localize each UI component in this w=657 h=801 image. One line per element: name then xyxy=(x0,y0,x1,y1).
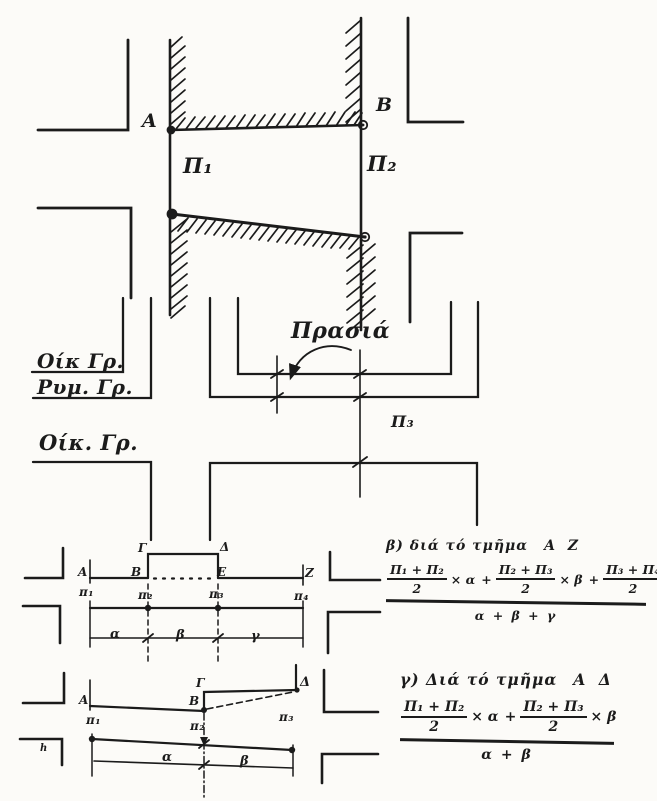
formula-segment-az: β) διά τό τμῆμαΑ Ζ Π₁ + Π₂ 2 × α + Π₂ + … xyxy=(386,538,646,623)
building-line-label-top: Οίκ Γρ. xyxy=(37,351,124,371)
az-seg-a-label: α xyxy=(110,628,121,641)
width-p3-label: Π₃ xyxy=(391,414,414,430)
ad-point-b-label: Β xyxy=(189,695,200,707)
az-point-a-label: A xyxy=(78,566,88,578)
az-pi2-dot xyxy=(145,605,151,611)
ad-top-right-corner xyxy=(324,670,378,712)
ad-pi-line xyxy=(92,739,292,750)
top-point-b-label: B xyxy=(376,96,393,115)
formula-ad-plus1: + xyxy=(505,709,517,725)
lower-left-dot xyxy=(167,209,178,220)
formula-az-fraction-bar xyxy=(386,599,646,606)
az-seg-b-label: β xyxy=(176,629,185,642)
corner-points xyxy=(167,121,370,241)
ad-b-dot xyxy=(201,707,207,713)
formula-az-denominator: α + β + γ xyxy=(386,608,646,623)
formula-az-frac2-num: Π₂ + Π₃ xyxy=(496,562,556,580)
az-pi2-label: π₂ xyxy=(138,589,153,601)
az-recess xyxy=(148,554,218,578)
az-pi3-label: π₃ xyxy=(209,588,224,600)
middle-measure-lines xyxy=(271,346,367,497)
formula-ad-mul2: × β xyxy=(591,709,617,725)
ad-pi3-label: π₃ xyxy=(279,711,294,723)
az-top-left-corner xyxy=(25,548,63,578)
ad-stray-mark: h xyxy=(40,744,48,754)
prasia-arrow xyxy=(291,346,351,377)
bottom-left-corner xyxy=(38,208,131,298)
ad-line-a-b xyxy=(90,706,204,711)
az-point-d-label: Δ xyxy=(220,541,230,553)
point-a-dot xyxy=(167,126,176,135)
formula-az-frac3-num: Π₃ + Π₄ xyxy=(603,562,657,580)
formula-ad-frac2: Π₂ + Π₃ 2 xyxy=(520,699,586,735)
formula-ad-frac1-den: 2 xyxy=(429,718,439,735)
bottom-facade-hatch-band xyxy=(178,218,359,249)
formula-ad-frac1-num: Π₁ + Π₂ xyxy=(401,699,467,718)
formula-az-plus2: + xyxy=(589,572,599,587)
ad-top-left-corner xyxy=(23,673,64,703)
formula-az-frac1-den: 2 xyxy=(413,580,422,596)
az-bottom-left-corner xyxy=(23,606,60,643)
formula-az-frac2-den: 2 xyxy=(521,580,530,596)
az-point-b-label: Β xyxy=(131,566,142,578)
top-right-corner xyxy=(408,18,463,122)
formula-az-numerator-row: Π₁ + Π₂ 2 × α + Π₂ + Π₃ 2 × β + Π₃ + Π₄ … xyxy=(386,562,646,596)
formula-az-frac1-num: Π₁ + Π₂ xyxy=(387,562,447,580)
ad-dashed-b-d xyxy=(207,692,293,709)
bottom-right-corner xyxy=(410,233,462,322)
formula-ad-frac2-den: 2 xyxy=(549,718,559,735)
ad-point-g-label: Γ xyxy=(196,677,205,689)
az-bottom-right-corner xyxy=(328,612,380,653)
ad-pi3-dot xyxy=(289,747,295,753)
az-pi3-dot xyxy=(215,605,221,611)
ad-bottom-right-corner xyxy=(322,754,378,783)
lower-left-building-corner xyxy=(33,462,151,540)
formula-az-frac1: Π₁ + Π₂ 2 xyxy=(387,562,447,596)
right-wall-top-hatch xyxy=(346,20,361,122)
ad-point-d-label: Δ xyxy=(300,676,311,689)
formula-ad-mul1: × α xyxy=(471,709,498,725)
lower-right-block-corner xyxy=(210,463,477,540)
left-wall-top-hatch xyxy=(171,37,185,124)
lower-right-dot xyxy=(363,235,366,238)
ad-point-a-label: A xyxy=(79,694,89,706)
top-street-corners xyxy=(38,18,463,322)
formula-ad-heading: γ) Διά τό τμῆμαΑ Δ xyxy=(400,670,614,689)
formula-ad-fraction-bar xyxy=(400,738,614,745)
ad-pi2-label: π₂ xyxy=(190,720,205,732)
ad-dimension-line xyxy=(94,761,293,768)
az-dashed-verticals xyxy=(148,584,218,662)
ad-seg-b-label: β xyxy=(240,755,249,768)
point-b-dot xyxy=(362,124,365,127)
formula-az-heading-text: β) διά τό τμῆμα xyxy=(386,538,528,554)
az-lower-line xyxy=(90,584,303,662)
formula-az-mul1: × α xyxy=(451,572,475,587)
az-building-line xyxy=(90,554,303,585)
az-seg-g-label: γ xyxy=(251,630,260,643)
formula-az-mul2: × β xyxy=(559,572,582,587)
az-pi1-label: π₁ xyxy=(79,586,94,598)
az-point-z-label: Ζ xyxy=(305,567,314,579)
formula-ad-heading-segment: Α Δ xyxy=(573,670,614,689)
az-top-right-corner xyxy=(330,552,380,580)
formula-ad-numerator-row: Π₁ + Π₂ 2 × α + Π₂ + Π₃ 2 × β xyxy=(400,699,614,735)
formula-az-frac3-den: 2 xyxy=(629,580,638,596)
formula-az-heading: β) διά τό τμῆμαΑ Ζ xyxy=(386,538,646,554)
formula-az-heading-segment: Α Ζ xyxy=(544,538,582,554)
formula-ad-frac2-num: Π₂ + Π₃ xyxy=(520,699,586,718)
formula-segment-ad: γ) Διά τό τμῆμαΑ Δ Π₁ + Π₂ 2 × α + Π₂ + … xyxy=(400,670,614,763)
az-point-g-label: Γ xyxy=(138,542,147,554)
formula-az-frac3: Π₃ + Π₄ 2 xyxy=(603,562,657,596)
formula-ad-heading-text: γ) Διά τό τμῆμα xyxy=(400,670,557,689)
left-wall-bottom-hatch xyxy=(171,219,187,318)
ad-d-dot xyxy=(294,687,299,692)
top-point-a-label: A xyxy=(142,112,157,131)
formula-ad-denominator: α + β xyxy=(400,747,614,763)
top-width-p2-label: Π₂ xyxy=(367,153,397,174)
front-garden-label: Πρασιά xyxy=(291,320,390,342)
formula-ad-frac1: Π₁ + Π₂ 2 xyxy=(401,699,467,735)
ad-pi1-label: π₁ xyxy=(86,714,101,726)
ad-pi1-dot xyxy=(89,736,95,742)
az-point-e-label: Ε xyxy=(217,566,227,578)
az-pi4-label: π₄ xyxy=(294,590,309,602)
street-line-label: Ρυμ. Γρ. xyxy=(37,377,133,397)
top-width-p1-label: Π₁ xyxy=(183,155,213,176)
measure-ticks xyxy=(271,370,367,467)
formula-az-plus1: + xyxy=(481,572,491,587)
top-left-corner xyxy=(38,40,128,130)
ad-seg-a-label: α xyxy=(162,751,173,764)
formula-az-frac2: Π₂ + Π₃ 2 xyxy=(496,562,556,596)
scanned-figure-page: A B Π₁ Π₂ Οίκ Γρ. Ρυμ. Γρ. Οίκ. Γρ. Πρασ… xyxy=(0,0,657,801)
building-line-label-bottom: Οίκ. Γρ. xyxy=(39,432,138,453)
